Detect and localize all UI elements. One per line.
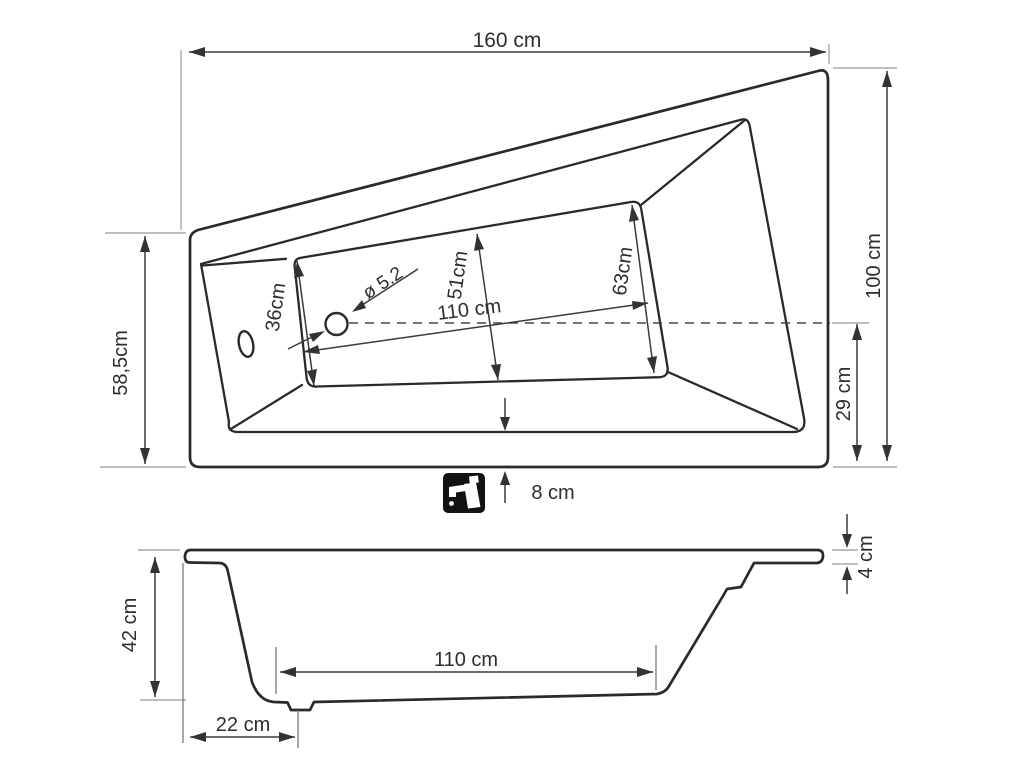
arrowhead [810, 47, 826, 57]
dim-apron: 8 cm [500, 398, 575, 504]
drawing-canvas: 160 cm 58,5cm 100 cm 29 cm [0, 0, 1024, 775]
overflow-hole [236, 330, 255, 358]
arrowhead [852, 445, 862, 461]
basin-length-label: 110 cm [436, 295, 502, 325]
arrowhead [190, 732, 206, 742]
side-view: 42 cm 4 cm 110 cm 22 cm [119, 514, 877, 748]
top-view: 160 cm 58,5cm 100 cm 29 cm [100, 29, 897, 513]
right-height-label: 100 cm [863, 233, 885, 299]
arrowhead [647, 356, 657, 373]
arrowhead [842, 534, 852, 548]
arrowhead [629, 205, 639, 222]
drain-offset-label: 22 cm [216, 714, 270, 736]
arrowhead [140, 448, 150, 464]
dim-side-bottom-length: 110 cm [276, 645, 656, 694]
arrowhead [842, 566, 852, 580]
arrowhead [500, 417, 510, 431]
right-wall-lower-edge [668, 372, 797, 429]
arrowhead [189, 47, 205, 57]
drain-diameter-label: ø 5.2 [359, 263, 407, 304]
rim-thickness-label: 4 cm [855, 535, 877, 578]
backrest-bottom-edge [230, 385, 302, 430]
arrowhead [500, 471, 510, 485]
overall-width-label: 160 cm [473, 29, 542, 52]
dim-drain-offset: 22 cm [190, 710, 298, 748]
dim-basin-width-right: 63cm [609, 205, 657, 373]
arrowhead [150, 557, 160, 573]
tub-side-profile [185, 550, 823, 710]
arrowhead [279, 732, 295, 742]
basin-width-middle-label: 51cm [444, 249, 473, 300]
arrowhead [852, 324, 862, 340]
arrowhead [150, 681, 160, 697]
arrowhead [280, 667, 296, 677]
arrowhead [474, 234, 484, 251]
dim-basin-length: 110 cm [303, 295, 830, 354]
dim-right-partial: 29 cm [832, 323, 869, 461]
apron-width-label: 8 cm [531, 482, 574, 504]
side-bottom-length-label: 110 cm [434, 649, 498, 671]
arrowhead [309, 331, 325, 342]
right-partial-label: 29 cm [833, 367, 855, 421]
side-height-label: 42 cm [119, 598, 141, 652]
dim-left-height: 58,5cm [100, 233, 186, 467]
arrowhead [352, 300, 366, 312]
basin-width-right-label: 63cm [609, 245, 638, 296]
arrowhead [303, 345, 320, 354]
left-height-label: 58,5cm [110, 330, 132, 396]
dim-basin-width-left: 36cm [262, 261, 317, 386]
arrowhead [882, 71, 892, 87]
faucet-icon [443, 473, 485, 513]
drain-hole [326, 313, 348, 335]
drawing-sheet: 160 cm 58,5cm 100 cm 29 cm [0, 0, 1024, 775]
arrowhead [882, 445, 892, 461]
dim-side-height: 42 cm [119, 550, 186, 743]
arrowhead [140, 236, 150, 252]
dim-rim-thickness: 4 cm [832, 514, 877, 594]
basin-width-left-label: 36cm [262, 281, 291, 332]
tub-inner-rim [201, 119, 804, 432]
arrowhead [637, 667, 653, 677]
arrowhead [491, 364, 501, 380]
